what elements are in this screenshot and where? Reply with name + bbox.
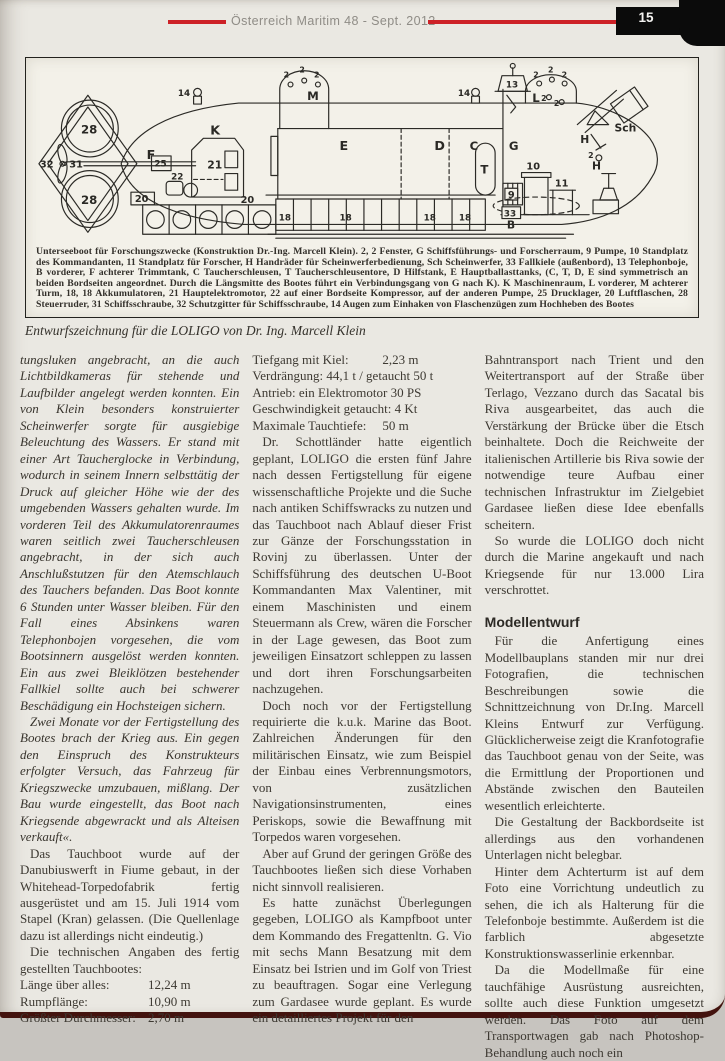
- svg-text:E: E: [339, 138, 348, 153]
- paragraph: Die technischen Angaben des fertig geste…: [20, 944, 239, 977]
- section-heading: Modellentwurf: [485, 614, 704, 630]
- spec-value: 12,24 m: [148, 977, 191, 993]
- svg-text:28: 28: [81, 122, 97, 136]
- svg-text:K: K: [210, 122, 221, 137]
- article-body: tungsluken angebracht, an die auch Licht…: [20, 352, 704, 1061]
- svg-text:11: 11: [555, 178, 569, 189]
- spec-row: Rumpflänge: 10,90 m: [20, 994, 239, 1010]
- page-number: 15: [631, 10, 661, 25]
- svg-text:32: 32: [40, 160, 54, 171]
- spec-value: 50 m: [382, 418, 408, 434]
- svg-text:2: 2: [554, 99, 559, 108]
- svg-text:18: 18: [424, 214, 436, 224]
- svg-text:31: 31: [69, 160, 83, 171]
- header-rule-left: [168, 20, 226, 24]
- svg-text:H: H: [580, 133, 589, 146]
- spec-label: Länge über alles:: [20, 977, 110, 992]
- page-corner-curl: [679, 0, 725, 46]
- paragraph: Für die Anfertigung eines Modellbauplans…: [485, 633, 704, 814]
- paragraph: Aber auf Grund der geringen Größe des Ta…: [252, 846, 471, 895]
- column-middle: Tiefgang mit Kiel: 2,23 m Verdrängung: 4…: [252, 352, 471, 1061]
- svg-text:D: D: [434, 138, 445, 153]
- spec-row: Tiefgang mit Kiel: 2,23 m: [252, 352, 471, 368]
- spec-row: Größter Durchmesser: 2,70 m: [20, 1010, 239, 1026]
- spec-label: Maximale Tauchtiefe:: [252, 418, 366, 433]
- spec-label: Verdrängung: 44,1 t / getaucht 50 t: [252, 368, 433, 383]
- svg-text:2: 2: [314, 71, 319, 80]
- spec-label: Größter Durchmesser:: [20, 1010, 136, 1025]
- paragraph: So wurde die LOLIGO doch nicht durch die…: [485, 533, 704, 599]
- submarine-cutaway-diagram: 28283231FK21252220201414M222EDCTG13L2222…: [26, 60, 696, 246]
- paragraph: Dr. Schottländer hatte eigentlich geplan…: [252, 434, 471, 697]
- svg-text:9: 9: [508, 190, 515, 201]
- figure-frame: 28283231FK21252220201414M222EDCTG13L2222…: [25, 57, 699, 318]
- svg-text:18: 18: [279, 214, 291, 224]
- masthead-title: Österreich Maritim 48 - Sept. 2012: [231, 14, 436, 28]
- spec-label: Antrieb: ein Elektromotor 30 PS: [252, 385, 421, 400]
- svg-text:Sch: Sch: [615, 121, 637, 134]
- svg-text:18: 18: [339, 214, 351, 224]
- svg-text:H: H: [592, 160, 601, 173]
- column-left: tungsluken angebracht, an die auch Licht…: [20, 352, 239, 1061]
- paragraph: Es hatte zunächst Überlegungen gegeben, …: [252, 895, 471, 1027]
- svg-text:20: 20: [135, 194, 149, 205]
- svg-text:14: 14: [458, 89, 470, 99]
- svg-text:M: M: [307, 89, 319, 103]
- spec-value: 2,70 m: [148, 1010, 184, 1026]
- spec-value: 2,23 m: [382, 352, 418, 368]
- paragraph: Die Gestaltung der Backbordseite ist all…: [485, 814, 704, 863]
- spec-label: Rumpflänge:: [20, 994, 88, 1009]
- svg-text:20: 20: [241, 195, 255, 206]
- svg-text:T: T: [480, 163, 488, 177]
- svg-text:14: 14: [178, 89, 190, 99]
- svg-text:2: 2: [299, 66, 304, 75]
- svg-text:2: 2: [284, 71, 289, 80]
- svg-text:25: 25: [154, 160, 166, 170]
- paragraph: Hinter dem Achterturm ist auf dem Foto e…: [485, 864, 704, 963]
- column-right: Bahntransport nach Trient und den Weiter…: [485, 352, 704, 1061]
- figure-subcaption: Entwurfszeichnung für die LOLIGO von Dr.…: [25, 323, 665, 339]
- spec-row: Verdrängung: 44,1 t / getaucht 50 t: [252, 368, 471, 384]
- paragraph: Da die Modellmaße für eine tauchfähige A…: [485, 962, 704, 1061]
- svg-text:2: 2: [548, 66, 553, 75]
- svg-text:18: 18: [459, 214, 471, 224]
- spec-row: Maximale Tauchtiefe: 50 m: [252, 418, 471, 434]
- spec-row: Antrieb: ein Elektromotor 30 PS: [252, 385, 471, 401]
- paragraph: Bahntransport nach Trient und den Weiter…: [485, 352, 704, 533]
- svg-text:13: 13: [506, 80, 518, 90]
- figure-caption: Unterseeboot für Forschungszwecke (Konst…: [26, 246, 698, 310]
- svg-text:2: 2: [588, 151, 593, 160]
- header-rule-right: [428, 20, 618, 24]
- svg-text:B: B: [507, 218, 515, 231]
- svg-text:28: 28: [81, 193, 97, 207]
- svg-text:22: 22: [171, 172, 183, 182]
- svg-text:2: 2: [533, 71, 538, 80]
- spec-label: Geschwindigkeit getaucht: 4 Kt: [252, 401, 417, 416]
- spec-row: Geschwindigkeit getaucht: 4 Kt: [252, 401, 471, 417]
- svg-text:2: 2: [562, 71, 567, 80]
- spec-label: Tiefgang mit Kiel:: [252, 352, 348, 367]
- paragraph: tungsluken angebracht, an die auch Licht…: [20, 352, 239, 714]
- svg-text:21: 21: [207, 159, 222, 172]
- magazine-page: Österreich Maritim 48 - Sept. 2012 15: [0, 0, 725, 1018]
- svg-text:2: 2: [541, 94, 546, 103]
- spec-row: Länge über alles: 12,24 m: [20, 977, 239, 993]
- svg-text:10: 10: [526, 162, 540, 173]
- svg-text:C: C: [470, 139, 479, 153]
- paragraph: Das Tauchboot wurde auf der Danubiuswerf…: [20, 846, 239, 945]
- svg-text:G: G: [509, 139, 519, 153]
- spec-value: 10,90 m: [148, 994, 191, 1010]
- paragraph: Zwei Monate vor der Fertigstellung des B…: [20, 714, 239, 846]
- paragraph: Doch noch vor der Fertigstellung requiri…: [252, 698, 471, 846]
- svg-text:L: L: [532, 91, 540, 105]
